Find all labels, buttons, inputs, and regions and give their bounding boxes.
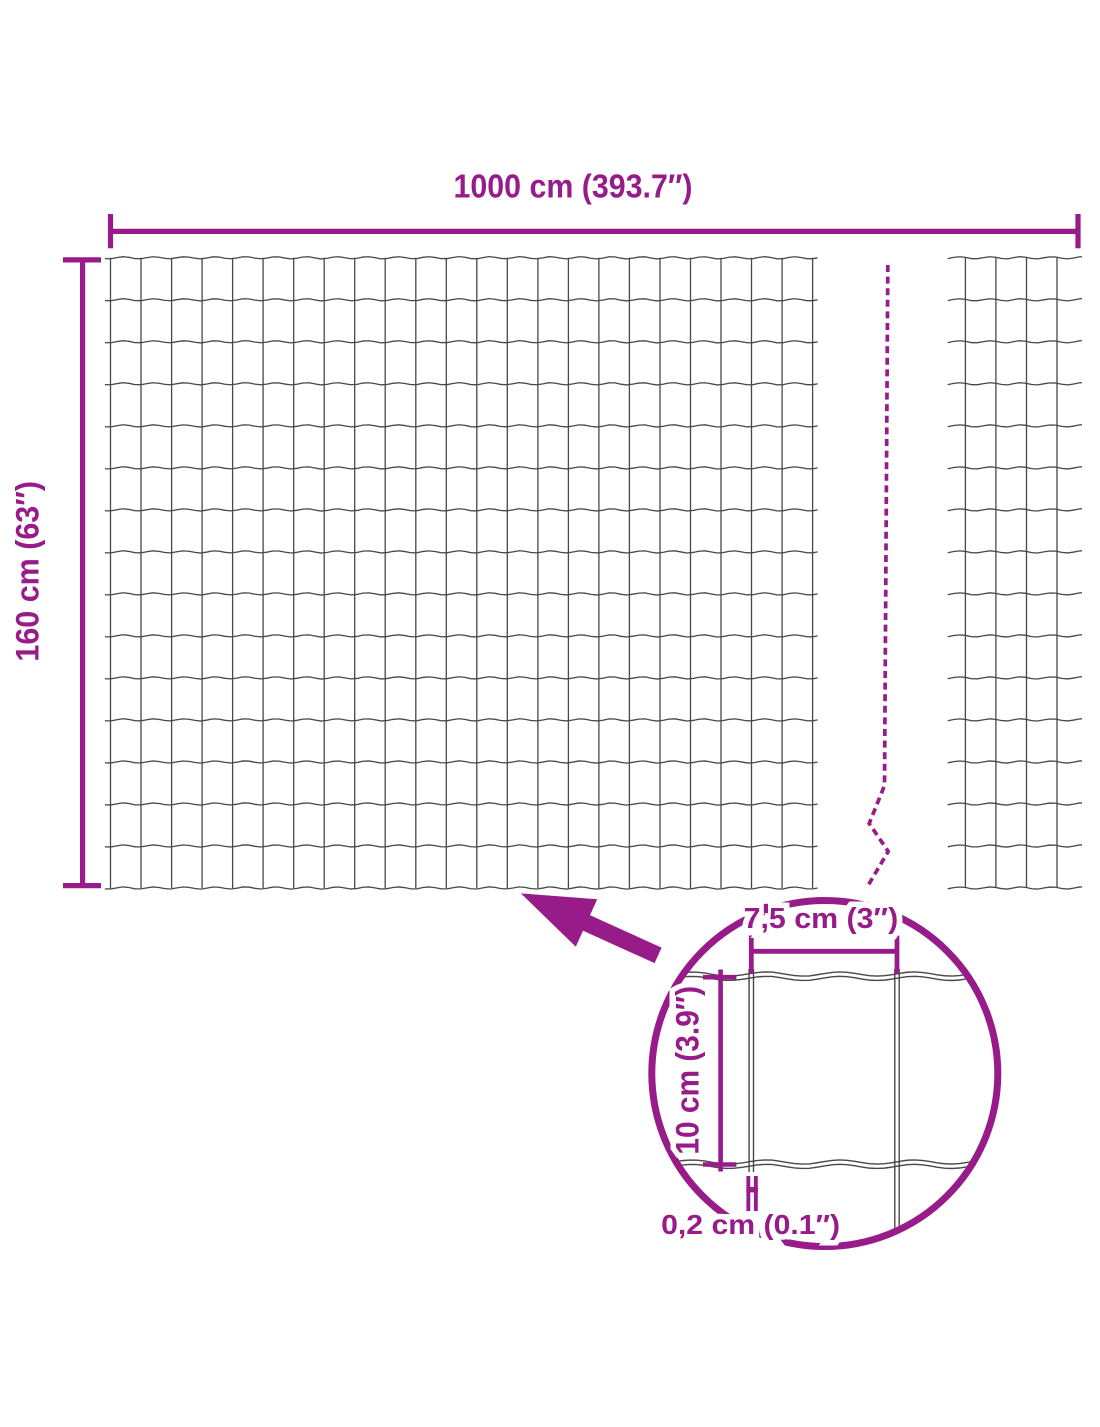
- svg-text:10 cm (3.9″): 10 cm (3.9″): [670, 986, 706, 1155]
- svg-text:160 cm (63″): 160 cm (63″): [10, 481, 46, 662]
- svg-text:0,2 cm (0.1″): 0,2 cm (0.1″): [661, 1209, 840, 1240]
- svg-text:1000 cm (393.7″): 1000 cm (393.7″): [454, 169, 693, 206]
